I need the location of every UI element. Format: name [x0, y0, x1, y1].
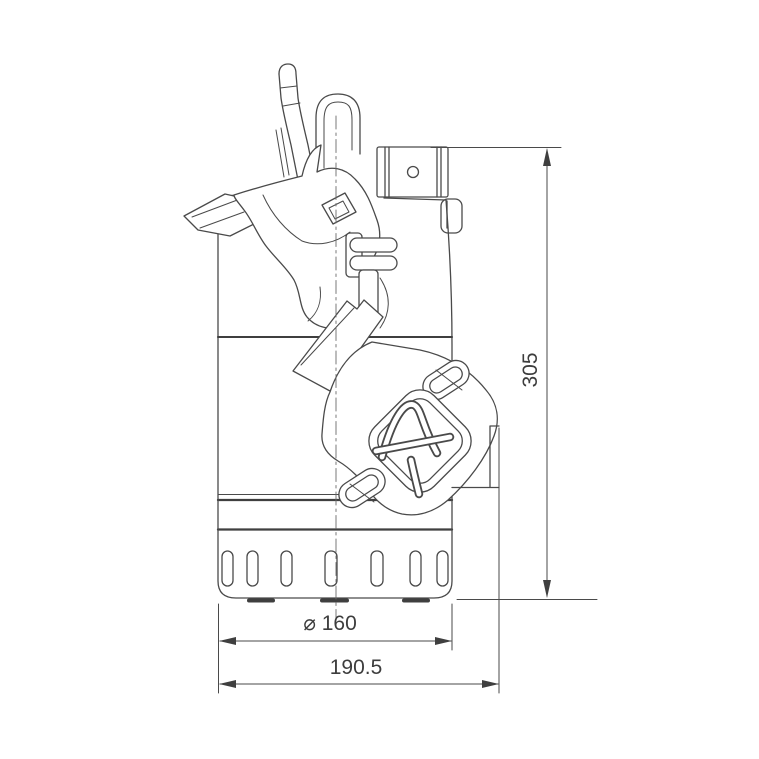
dimension-label-width: 190.5 — [314, 657, 398, 679]
dimension-width — [219, 680, 499, 688]
dimension-height — [543, 148, 551, 598]
discharge-bracket — [377, 147, 462, 233]
arrow-right-icon — [435, 637, 452, 645]
arrow-down-icon — [543, 580, 551, 598]
arrow-right-icon — [482, 680, 499, 688]
float-switch-cassette — [293, 300, 497, 515]
technical-drawing-page: 305 ⌀ 160 190.5 — [0, 0, 759, 759]
dimension-label-diameter: ⌀ 160 — [288, 613, 372, 635]
dimension-label-height: 305 — [520, 340, 542, 400]
pump-technical-drawing — [0, 0, 759, 759]
dimension-diameter — [219, 637, 452, 645]
arrow-left-icon — [219, 680, 236, 688]
arrow-left-icon — [219, 637, 236, 645]
arrow-up-icon — [543, 148, 551, 166]
bracket-hole — [408, 167, 419, 178]
bracket-hook — [441, 199, 462, 233]
carrying-handle — [316, 94, 360, 172]
